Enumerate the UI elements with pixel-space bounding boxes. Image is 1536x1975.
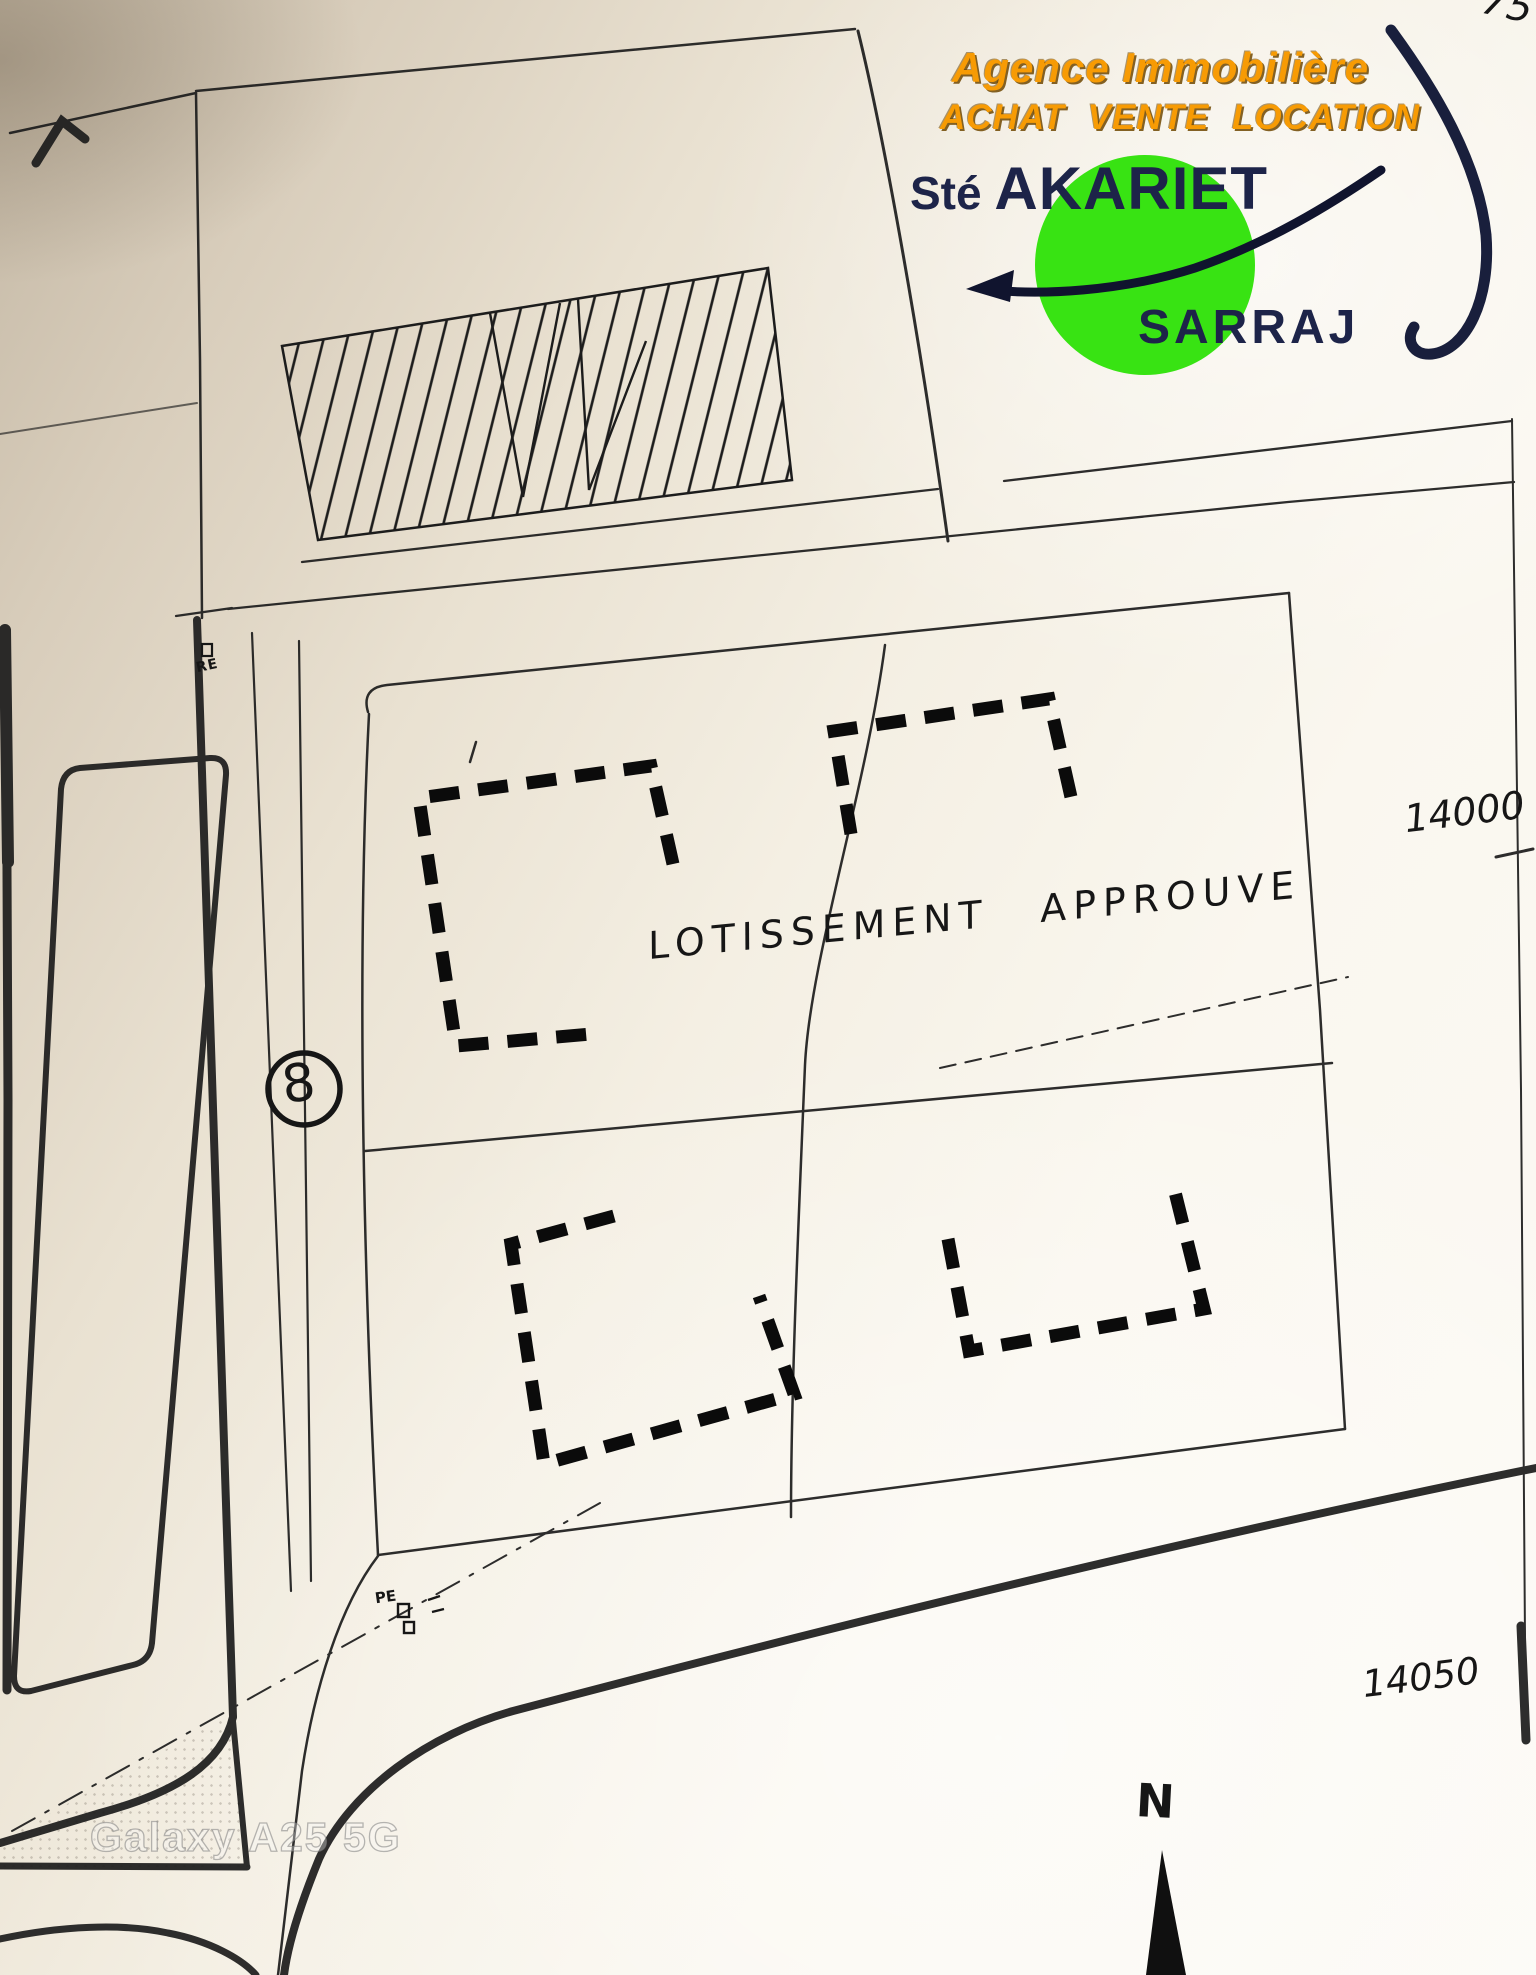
north-label: N [1135, 1773, 1176, 1829]
hatched-building [282, 268, 792, 540]
survey-marker-symbols [202, 644, 444, 1633]
logo-tagline-line2: ACHAT VENTE LOCATION [940, 98, 1420, 138]
survey-marker-pe: PE [374, 1587, 398, 1608]
plan-linework [0, 0, 1536, 1975]
logo-company-name: Sté AKARIET [910, 154, 1268, 223]
logo-company-subname: SARRAJ [1138, 300, 1359, 355]
building-outline-4 [948, 1188, 1204, 1351]
building-outline-2 [834, 699, 1073, 834]
logo-company-prefix: Sté [910, 167, 982, 219]
logo-company-main: AKARIET [994, 155, 1268, 222]
north-arrow-icon [1146, 1850, 1186, 1975]
lot-number: 8 [278, 1052, 318, 1116]
building-outline-3 [511, 1216, 794, 1464]
building-outline-1 [419, 766, 673, 1046]
camera-watermark: Galaxy A25 5G [90, 1814, 402, 1861]
dashed-building-outlines [419, 699, 1204, 1464]
logo-tagline-line1: Agence Immobilière [952, 44, 1369, 92]
scanned-site-plan: Agence Immobilière ACHAT VENTE LOCATION … [0, 0, 1536, 1975]
